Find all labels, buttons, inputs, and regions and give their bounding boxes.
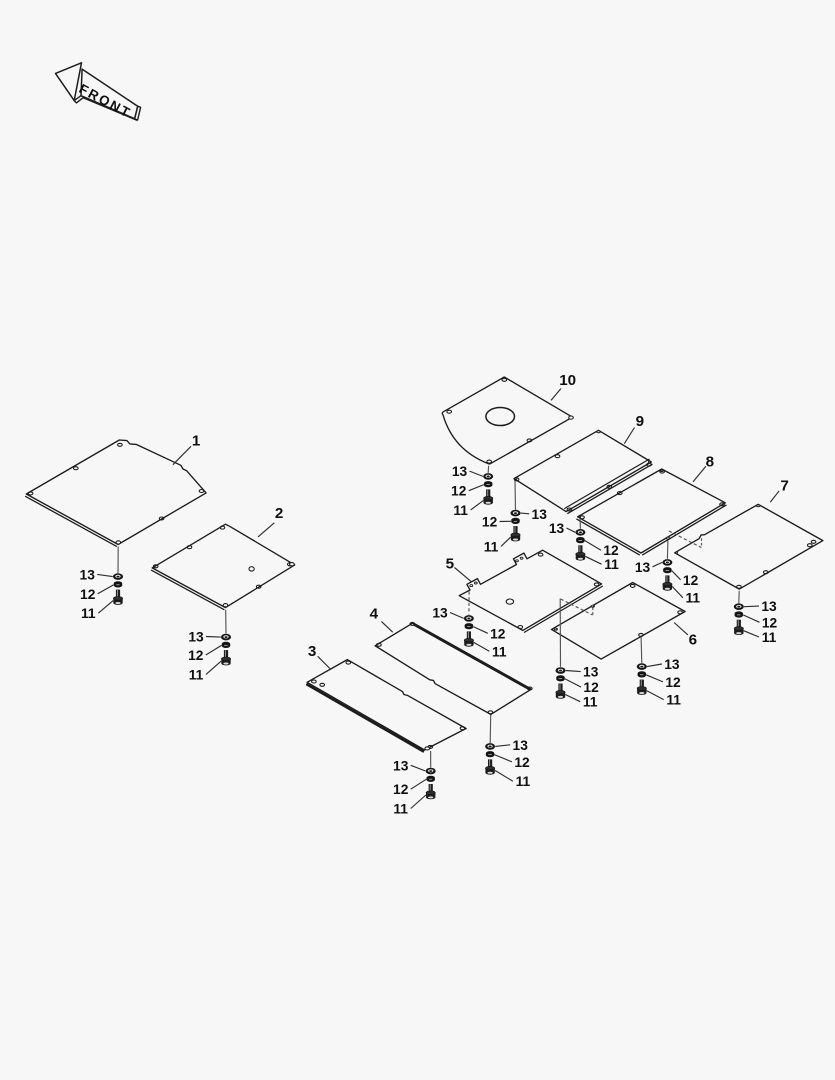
svg-text:7: 7 (780, 477, 788, 494)
svg-text:5: 5 (446, 556, 455, 573)
svg-text:13: 13 (188, 630, 204, 645)
svg-text:12: 12 (490, 626, 506, 641)
svg-text:11: 11 (516, 774, 531, 789)
svg-text:11: 11 (583, 695, 598, 710)
svg-text:11: 11 (189, 667, 204, 682)
svg-text:13: 13 (432, 606, 448, 621)
svg-text:12: 12 (393, 782, 409, 797)
svg-text:13: 13 (761, 599, 777, 614)
svg-text:6: 6 (689, 631, 697, 648)
svg-text:12: 12 (514, 755, 530, 770)
svg-text:11: 11 (604, 557, 619, 572)
svg-text:12: 12 (583, 680, 599, 695)
svg-text:13: 13 (532, 507, 548, 522)
svg-text:13: 13 (393, 758, 409, 773)
svg-text:13: 13 (513, 738, 529, 753)
svg-text:11: 11 (453, 503, 468, 518)
svg-text:12: 12 (665, 675, 681, 690)
svg-text:11: 11 (492, 644, 507, 659)
svg-text:12: 12 (762, 615, 778, 630)
svg-text:11: 11 (762, 630, 777, 645)
svg-text:9: 9 (636, 413, 644, 430)
svg-text:13: 13 (80, 567, 96, 582)
svg-text:8: 8 (706, 453, 714, 470)
svg-text:12: 12 (683, 573, 699, 588)
svg-text:11: 11 (666, 693, 681, 708)
svg-text:12: 12 (451, 484, 467, 499)
svg-text:11: 11 (484, 539, 499, 554)
svg-text:13: 13 (549, 521, 565, 536)
svg-text:2: 2 (275, 505, 283, 522)
svg-text:13: 13 (583, 665, 599, 680)
svg-text:12: 12 (188, 648, 204, 663)
svg-text:12: 12 (603, 543, 619, 558)
svg-text:11: 11 (393, 802, 408, 817)
svg-text:3: 3 (308, 643, 316, 660)
svg-text:13: 13 (452, 464, 468, 479)
svg-text:11: 11 (686, 591, 701, 606)
svg-text:13: 13 (635, 560, 651, 575)
svg-text:11: 11 (81, 606, 96, 621)
svg-text:1: 1 (192, 433, 201, 450)
svg-text:4: 4 (370, 606, 379, 623)
svg-text:12: 12 (80, 587, 96, 602)
svg-text:12: 12 (482, 515, 498, 530)
svg-text:10: 10 (559, 372, 576, 389)
svg-text:13: 13 (664, 657, 680, 672)
